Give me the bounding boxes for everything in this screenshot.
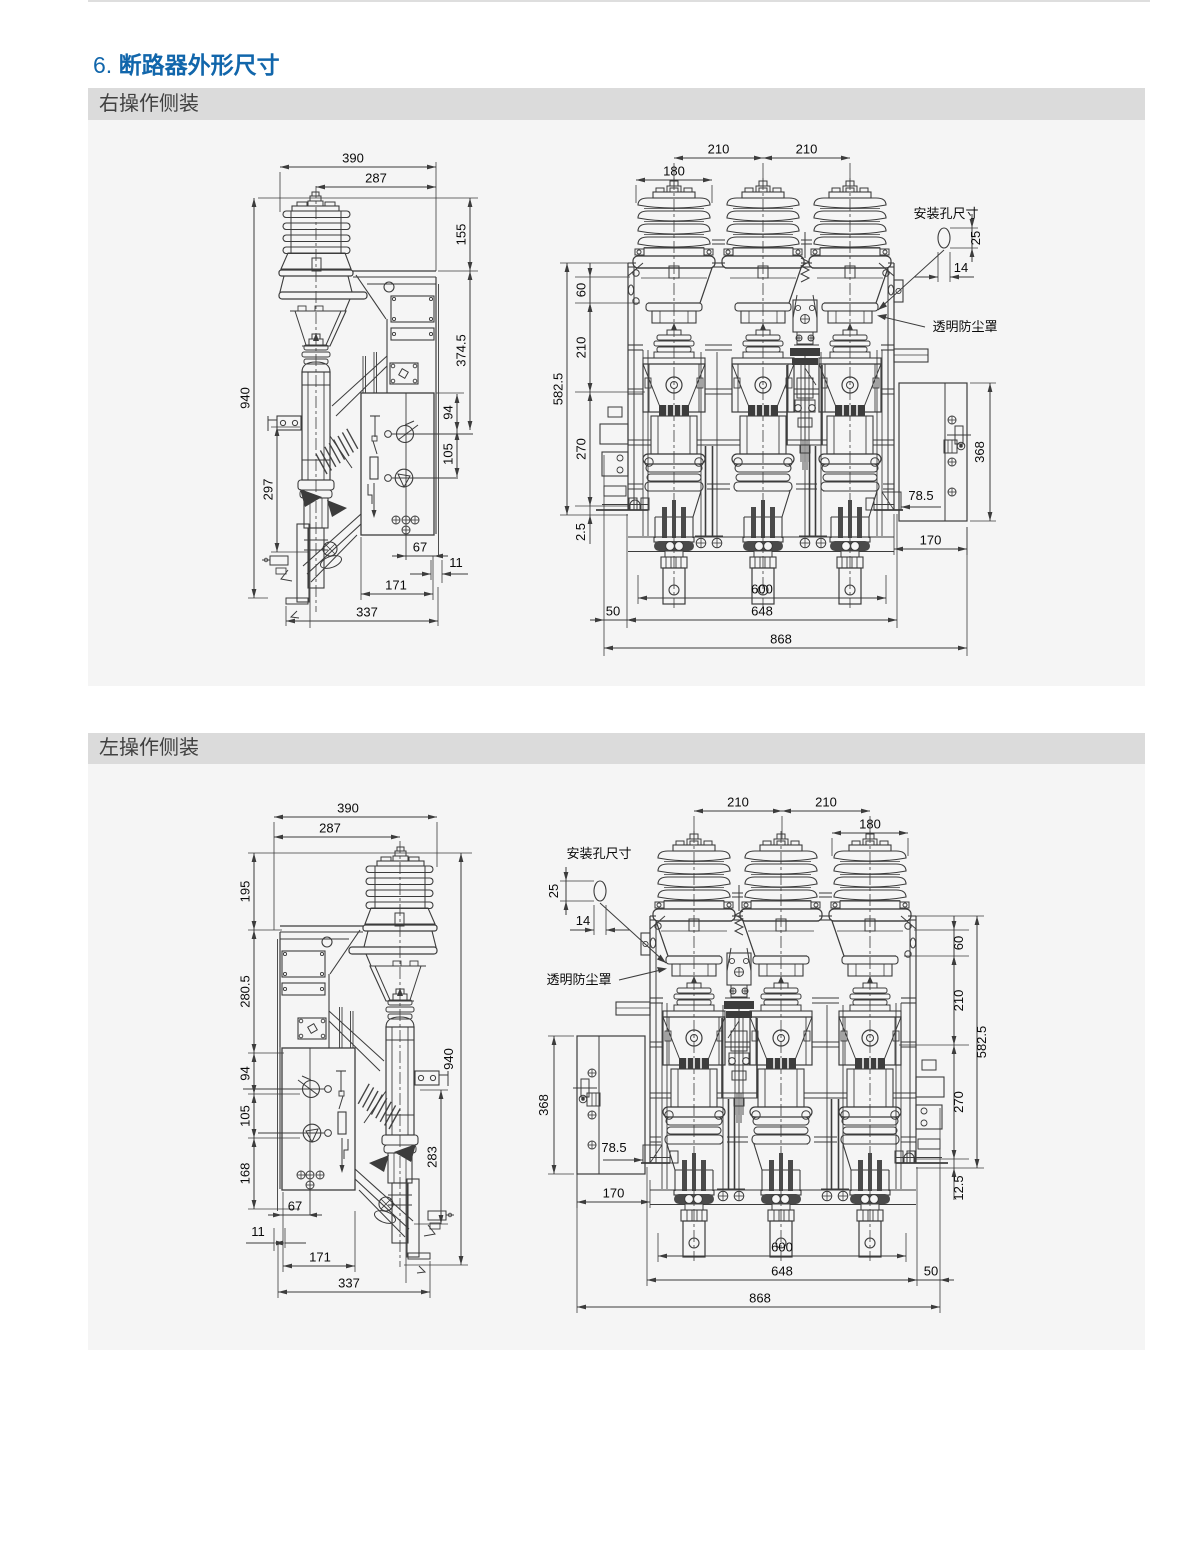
svg-text:280.5: 280.5 xyxy=(238,975,253,1008)
svg-text:168: 168 xyxy=(238,1163,253,1185)
svg-text:195: 195 xyxy=(238,881,253,903)
svg-text:648: 648 xyxy=(751,604,773,619)
svg-text:60: 60 xyxy=(951,936,966,950)
svg-text:14: 14 xyxy=(576,913,590,928)
svg-text:11: 11 xyxy=(449,555,463,570)
svg-text:171: 171 xyxy=(385,578,407,593)
svg-text:50: 50 xyxy=(924,1264,938,1279)
svg-text:50: 50 xyxy=(606,604,620,619)
svg-text:105: 105 xyxy=(441,443,456,465)
svg-text:390: 390 xyxy=(342,151,364,166)
svg-text:270: 270 xyxy=(574,438,589,460)
svg-text:安装孔尺寸: 安装孔尺寸 xyxy=(566,846,631,861)
svg-text:2.5: 2.5 xyxy=(573,523,588,541)
svg-text:94: 94 xyxy=(441,405,456,419)
svg-text:210: 210 xyxy=(951,990,966,1012)
svg-text:78.5: 78.5 xyxy=(908,488,933,503)
svg-text:210: 210 xyxy=(815,795,837,810)
svg-text:582.5: 582.5 xyxy=(551,373,566,406)
svg-text:14: 14 xyxy=(954,260,968,275)
svg-text:270: 270 xyxy=(951,1091,966,1113)
svg-text:60: 60 xyxy=(574,283,589,297)
svg-text:透明防尘罩: 透明防尘罩 xyxy=(546,972,611,987)
svg-text:368: 368 xyxy=(972,441,987,463)
svg-text:25: 25 xyxy=(968,231,983,245)
svg-text:374.5: 374.5 xyxy=(454,334,469,367)
svg-text:287: 287 xyxy=(365,171,387,186)
svg-text:600: 600 xyxy=(771,1240,793,1255)
svg-text:171: 171 xyxy=(309,1250,331,1265)
svg-text:582.5: 582.5 xyxy=(974,1026,989,1059)
svg-text:868: 868 xyxy=(770,632,792,647)
svg-text:105: 105 xyxy=(238,1105,253,1127)
svg-text:透明防尘罩: 透明防尘罩 xyxy=(932,319,997,334)
svg-text:337: 337 xyxy=(356,605,378,620)
svg-text:210: 210 xyxy=(796,142,818,157)
svg-text:368: 368 xyxy=(536,1094,551,1116)
svg-text:337: 337 xyxy=(338,1276,360,1291)
svg-text:180: 180 xyxy=(859,817,881,832)
svg-text:390: 390 xyxy=(337,801,359,816)
svg-text:170: 170 xyxy=(920,533,942,548)
svg-text:648: 648 xyxy=(771,1264,793,1279)
svg-text:12.5: 12.5 xyxy=(951,1175,966,1200)
svg-text:868: 868 xyxy=(749,1291,771,1306)
svg-text:210: 210 xyxy=(727,795,749,810)
svg-text:940: 940 xyxy=(441,1048,456,1070)
svg-text:297: 297 xyxy=(261,479,276,501)
svg-text:11: 11 xyxy=(251,1224,265,1239)
svg-text:283: 283 xyxy=(425,1146,440,1168)
svg-text:210: 210 xyxy=(708,142,730,157)
svg-text:155: 155 xyxy=(454,224,469,246)
svg-text:94: 94 xyxy=(238,1066,253,1080)
svg-text:67: 67 xyxy=(413,540,427,555)
svg-text:287: 287 xyxy=(319,821,341,836)
svg-text:940: 940 xyxy=(238,387,253,409)
svg-text:210: 210 xyxy=(574,337,589,359)
svg-text:安装孔尺寸: 安装孔尺寸 xyxy=(913,206,978,221)
svg-text:25: 25 xyxy=(546,884,561,898)
svg-text:67: 67 xyxy=(288,1199,302,1214)
svg-text:600: 600 xyxy=(751,582,773,597)
svg-text:78.5: 78.5 xyxy=(601,1140,626,1155)
svg-text:180: 180 xyxy=(663,164,685,179)
svg-text:170: 170 xyxy=(603,1186,625,1201)
